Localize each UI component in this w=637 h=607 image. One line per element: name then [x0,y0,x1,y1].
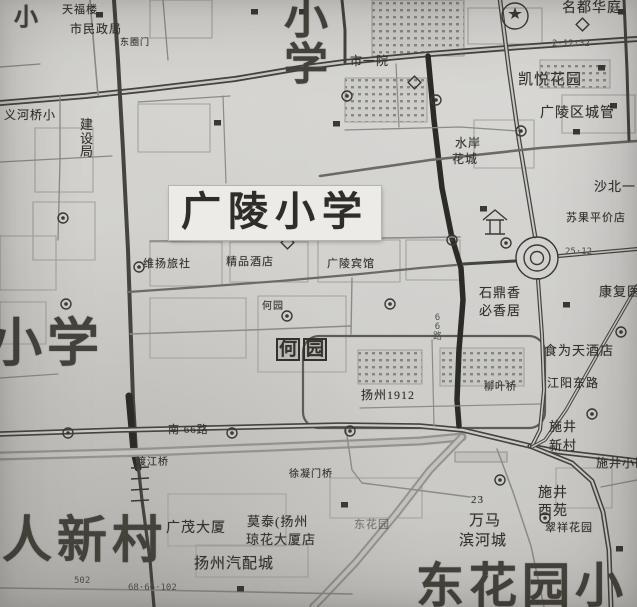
map-canvas: 小学广陵小学小学人新村东花园小小天福楼市民政局东圈门市一院名都华庭凯悦花园广陵区… [0,0,637,607]
map-label: 建设局 [80,118,93,159]
map-label: 人新村 [2,514,167,566]
map-label: 食为天酒店 [544,344,614,358]
map-label: 沙北一 [594,180,636,194]
map-label: 精品酒店 [226,257,274,268]
map-label: 石鼎香 [479,286,521,300]
map-label: 南 66路 [168,425,209,436]
map-label-char: 小 [284,0,328,42]
map-label: 西苑 [538,505,568,520]
map-label-char: 园 [303,338,327,361]
map-label: 市民政局 [70,23,122,35]
map-labels-layer: 小学广陵小学小学人新村东花园小小天福楼市民政局东圈门市一院名都华庭凯悦花园广陵区… [0,0,637,607]
map-label: 广陵区城管 [540,107,615,122]
bus-route-label: 25·12 [565,248,592,257]
map-label: 小学 [284,0,328,88]
map-label: 扬州1912 [361,389,415,401]
map-label: 扬州汽配城 [194,557,274,573]
map-label: 花城 [452,153,478,165]
map-label-plate: 广陵小学 [169,186,381,240]
map-label: 施井 [538,487,568,502]
map-label-char: 建 [80,118,93,132]
map-label: 凯悦花园 [518,73,582,89]
map-label: 徐凝门桥 [289,470,333,480]
map-label: 苏果平价店 [566,213,626,224]
map-label: 康复医院 [599,285,637,299]
map-label-char: 学 [284,42,328,88]
map-label: 施井小区 [596,457,637,469]
map-label: 维扬旅社 [143,259,191,270]
map-label: 新村 [549,439,577,453]
map-label: 广陵宾馆 [327,259,375,270]
map-label-char: 何 [276,338,300,361]
map-label: 广茂大厦 [166,522,226,537]
map-label: 琼花大厦店 [246,533,316,547]
map-label: 施井 [549,420,577,434]
map-label: 23 [471,495,484,506]
map-label: 万马 [469,514,501,530]
map-label: 水岸 [455,137,481,149]
map-label: 义河桥小 [4,109,56,121]
map-label: 必香居 [479,304,521,318]
bus-route-label: 68·66·102 [128,584,177,593]
map-label-char: 设 [80,132,93,146]
map-label: 东圈门 [120,38,150,47]
map-label: 小 [14,6,43,31]
map-label-char: 路 [433,333,442,342]
scenic-spot-label: 何园 [276,338,330,361]
map-label: 市一院 [350,55,389,67]
map-label: 渡江桥 [136,458,169,468]
map-label-char: 局 [80,145,93,159]
map-label: 东花园 [354,520,390,531]
map-label: 何园 [262,302,284,312]
bus-route-label: 502 [74,577,90,586]
map-label: 滨河城 [459,534,507,550]
map-label: 天福楼 [62,5,98,16]
map-label: 翠祥花园 [545,523,593,534]
map-label: 东花园小 [416,562,628,607]
map-label: 江阳东路 [547,377,599,389]
map-label: 柳叶桥 [484,383,517,393]
map-label: 小学 [0,318,104,372]
bus-route-label: 2·12·32 [552,40,590,49]
map-label: 莫泰(扬州 [247,515,308,529]
bus-route-label: 66路 [433,314,442,342]
map-label: 名都华庭 [562,2,622,17]
